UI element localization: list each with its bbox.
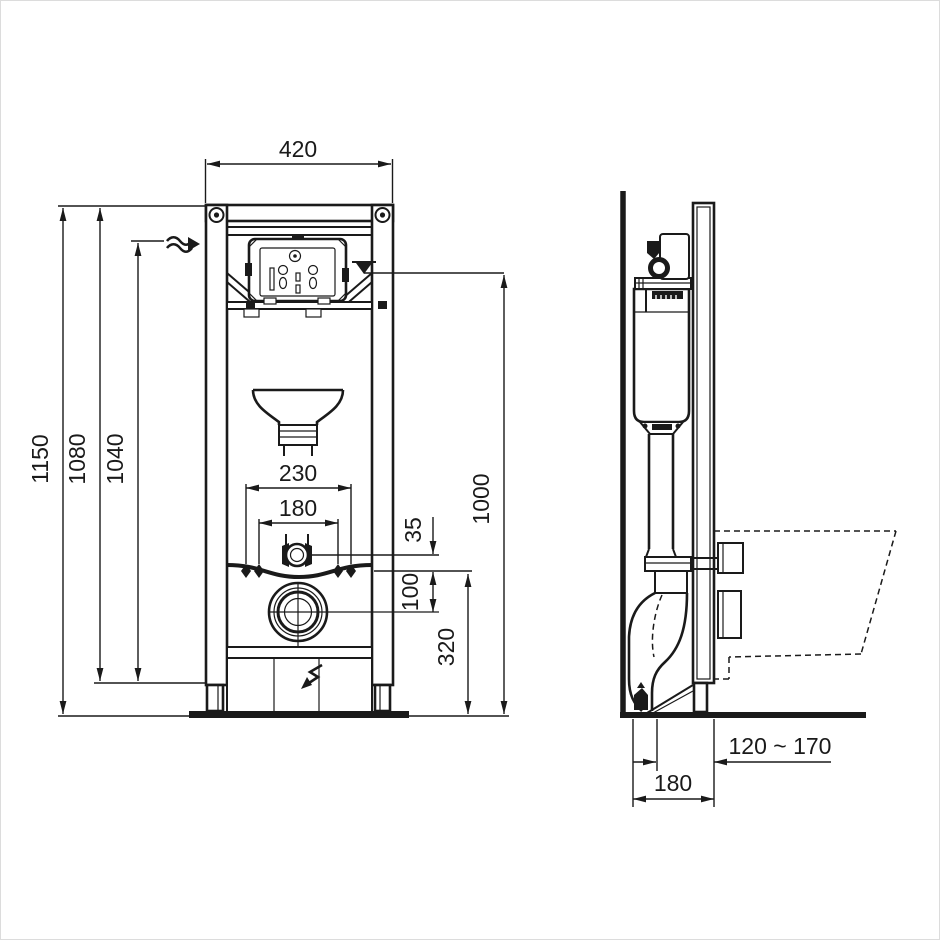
wc-frame-drawing: 420 1150 1080 1040 230 180 [1,1,940,941]
corner-bolt-icon [210,208,224,222]
dim-label-1150: 1150 [27,434,53,483]
pan-fixing-brackets [718,543,743,638]
base-plate [189,711,409,718]
dim-label-100: 100 [397,573,423,611]
dim-label-120-170: 120 ~ 170 [729,733,832,759]
dim-height-water-inlet: 1040 [102,243,138,681]
flush-bend [253,390,343,456]
cistern-access-panel [245,235,349,304]
cistern-side [634,234,691,434]
dim-height-fixing-bolts: 320 [433,574,468,714]
dim-label-180-bolts: 180 [279,495,317,521]
fill-valve [647,234,689,279]
dim-depth-frame: 180 [633,770,714,799]
dim-outlet-offset: 100 [397,572,433,612]
panel-screw-icon [290,251,301,262]
front-view: 420 1150 1080 1040 230 180 [27,136,509,718]
water-inlet-arrow-icon [167,237,200,252]
flushpipe-connection [282,534,312,567]
fixing-bolt [333,564,343,578]
fixing-bolt [254,564,264,578]
dim-height-water-level: 1000 [468,275,504,714]
dim-flushpipe-offset: 35 [400,517,433,554]
dim-height-overall: 1150 [27,208,63,714]
flush-valve-teeth [652,291,683,299]
dim-label-35: 35 [400,517,426,543]
dim-label-420: 420 [279,136,317,162]
adjustable-foot [375,685,390,711]
dim-label-1080: 1080 [64,433,90,484]
corner-bolt-icon [376,208,390,222]
adjustable-foot [207,685,223,711]
dim-width-top: 420 [206,136,393,203]
dim-label-1000: 1000 [468,473,494,524]
hanger-tabs [244,309,321,317]
dim-label-230: 230 [279,460,317,486]
dim-label-320: 320 [433,628,459,666]
dim-height-frame: 1080 [64,208,100,681]
dim-label-1040: 1040 [102,433,128,484]
drawing-canvas: 420 1150 1080 1040 230 180 [0,0,940,940]
side-view: 120 ~ 170 180 [620,191,896,807]
dim-label-180-depth: 180 [654,770,692,796]
